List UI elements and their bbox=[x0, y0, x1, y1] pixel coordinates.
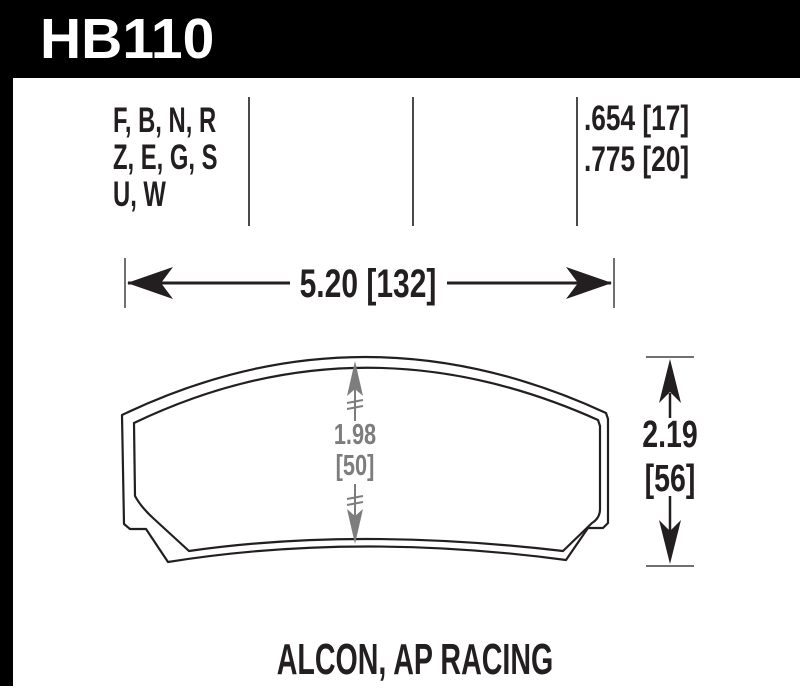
thickness-spec-line-2: .775 [20] bbox=[584, 139, 689, 180]
compound-codes-line-1: F, B, N, R bbox=[113, 102, 217, 139]
overall-height-value: 2.19 bbox=[633, 416, 708, 454]
compound-codes-line-3: U, W bbox=[113, 176, 217, 213]
width-dimension-label: 5.20 [132] bbox=[293, 264, 443, 304]
pad-height-metric: [50] bbox=[318, 452, 393, 481]
thickness-spec-line-1: .654 [17] bbox=[584, 98, 689, 139]
compound-codes-line-2: Z, E, G, S bbox=[113, 139, 217, 176]
compound-codes: F, B, N, R Z, E, G, S U, W bbox=[113, 102, 267, 213]
spec-column-separators bbox=[249, 97, 577, 226]
thickness-specs: .654 [17] .775 [20] bbox=[584, 98, 724, 180]
applications-label: ALCON, AP RACING bbox=[165, 638, 666, 682]
brake-pad-spec-card: HB110 bbox=[0, 0, 800, 691]
pad-height-value: 1.98 bbox=[318, 421, 393, 450]
overall-height-metric: [56] bbox=[633, 460, 708, 498]
